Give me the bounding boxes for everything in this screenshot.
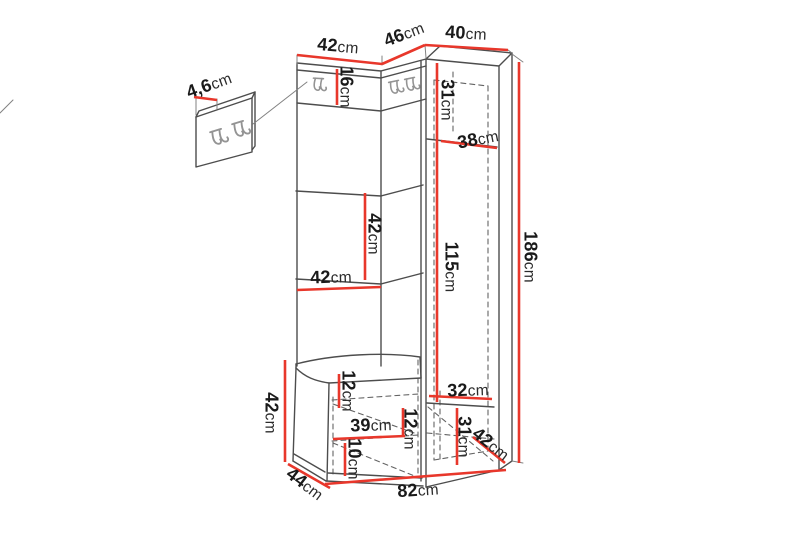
dim-label-total-width: 82cm xyxy=(397,479,440,500)
dim-label-cabinet-top-section-height: 31cm xyxy=(438,79,457,120)
coat-hook-icon xyxy=(389,80,404,94)
dim-label-left-panel-width: 42cm xyxy=(317,35,360,57)
dim-label-bench-inner-width: 39cm xyxy=(350,415,392,435)
coat-hook-icon xyxy=(405,77,420,91)
dim-label-total-height: 186cm xyxy=(521,231,540,283)
coat-hooks xyxy=(210,77,420,146)
dim-label-panel-section-height: 42cm xyxy=(365,213,384,254)
dim-label-bench-shelf-spacing: 12cm xyxy=(401,408,420,449)
dim-label-door-section-height: 115cm xyxy=(442,242,461,293)
coat-hook-icon xyxy=(313,78,327,91)
dim-label-bench-height: 42cm xyxy=(262,392,281,433)
dim-label-bench-bottom-clearance: 10cm xyxy=(345,438,364,479)
furniture-dimension-diagram: 4,6cm 42cm 46cm 40cm 16cm 31cm 38cm 42cm… xyxy=(0,0,800,533)
dim-label-panel-section-width: 42cm xyxy=(310,267,352,287)
coat-hook-icon xyxy=(210,128,229,145)
dim-label-hook-strip-height: 16cm xyxy=(337,66,356,107)
dim-label-bench-top-clearance: 12cm xyxy=(339,370,358,411)
dim-label-cabinet-width: 40cm xyxy=(445,23,487,44)
diagram-canvas xyxy=(0,0,800,533)
coat-hook-icon xyxy=(232,120,251,137)
dim-label-cabinet-bottom-section-width: 32cm xyxy=(447,380,489,400)
